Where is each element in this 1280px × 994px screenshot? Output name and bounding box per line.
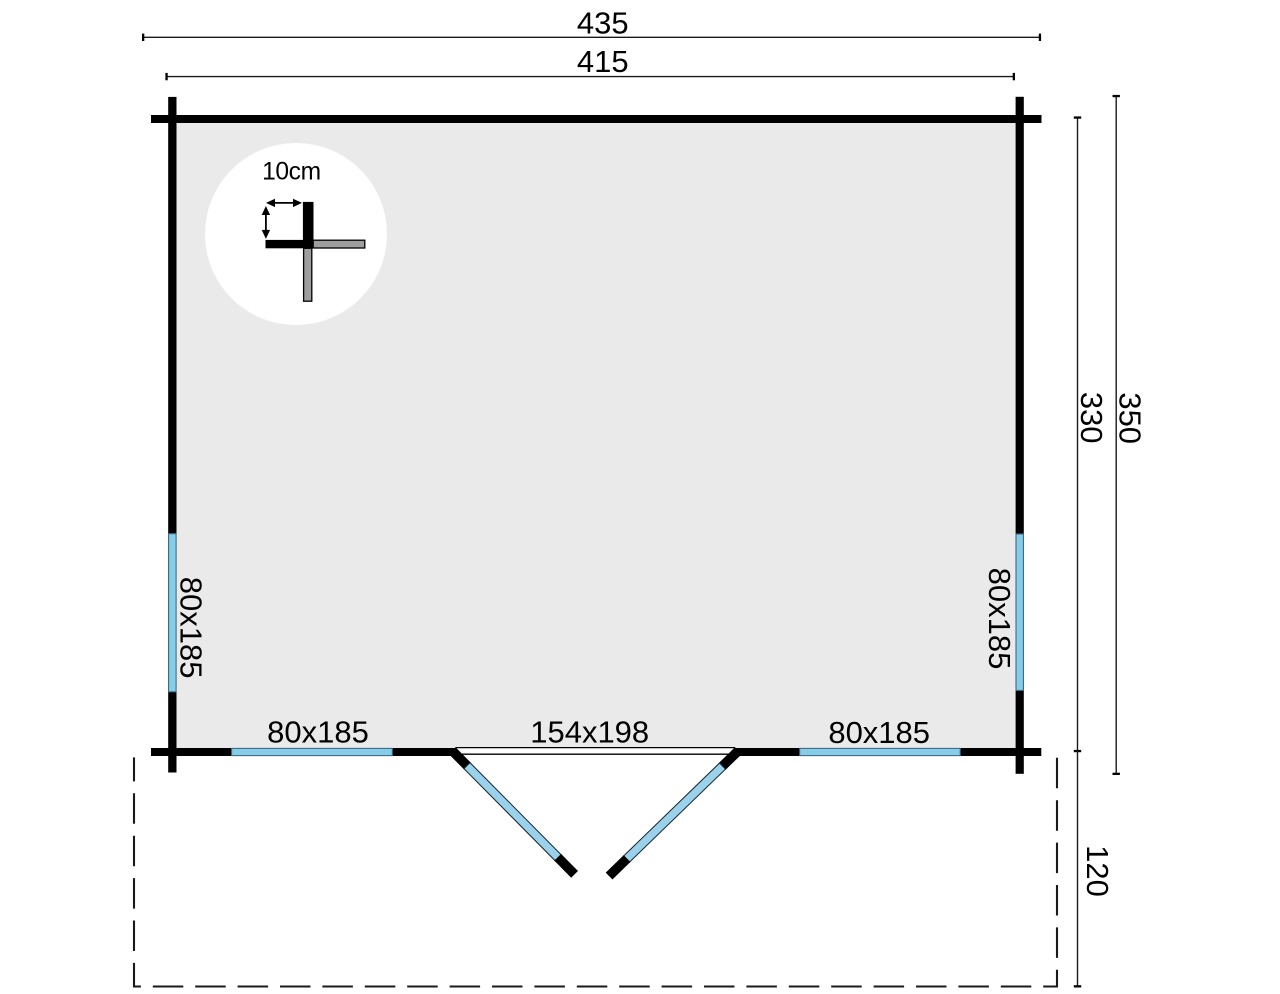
- svg-text:330: 330: [1074, 392, 1109, 444]
- svg-text:80x185: 80x185: [828, 715, 930, 750]
- svg-text:10cm: 10cm: [262, 159, 321, 186]
- svg-text:80x185: 80x185: [267, 715, 369, 750]
- svg-text:415: 415: [577, 44, 629, 79]
- svg-text:120: 120: [1080, 845, 1115, 897]
- svg-text:80x185: 80x185: [982, 568, 1017, 670]
- svg-text:435: 435: [577, 6, 629, 41]
- svg-text:80x185: 80x185: [174, 577, 209, 679]
- svg-text:350: 350: [1112, 392, 1147, 444]
- svg-text:154x198: 154x198: [530, 715, 649, 750]
